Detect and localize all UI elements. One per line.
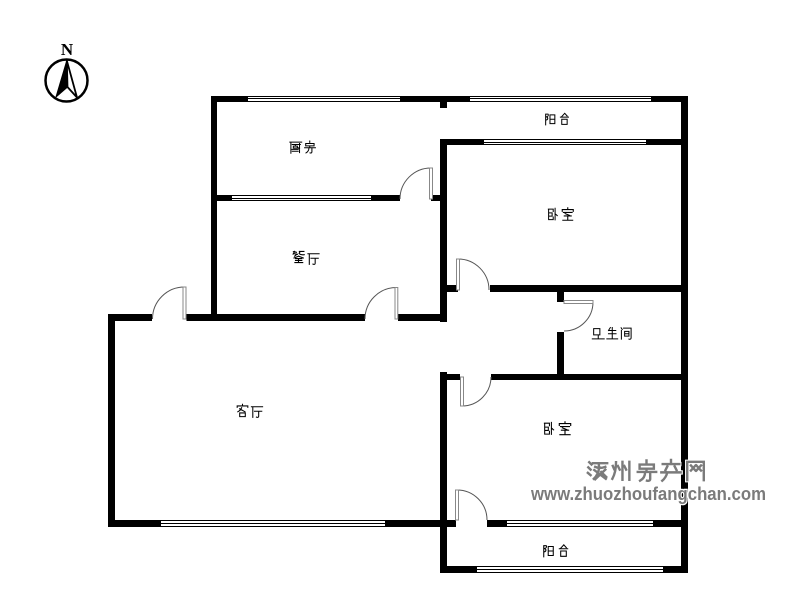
svg-text:N: N xyxy=(61,40,74,59)
svg-text:www.zhuozhoufangchan.com: www.zhuozhoufangchan.com xyxy=(530,483,766,504)
